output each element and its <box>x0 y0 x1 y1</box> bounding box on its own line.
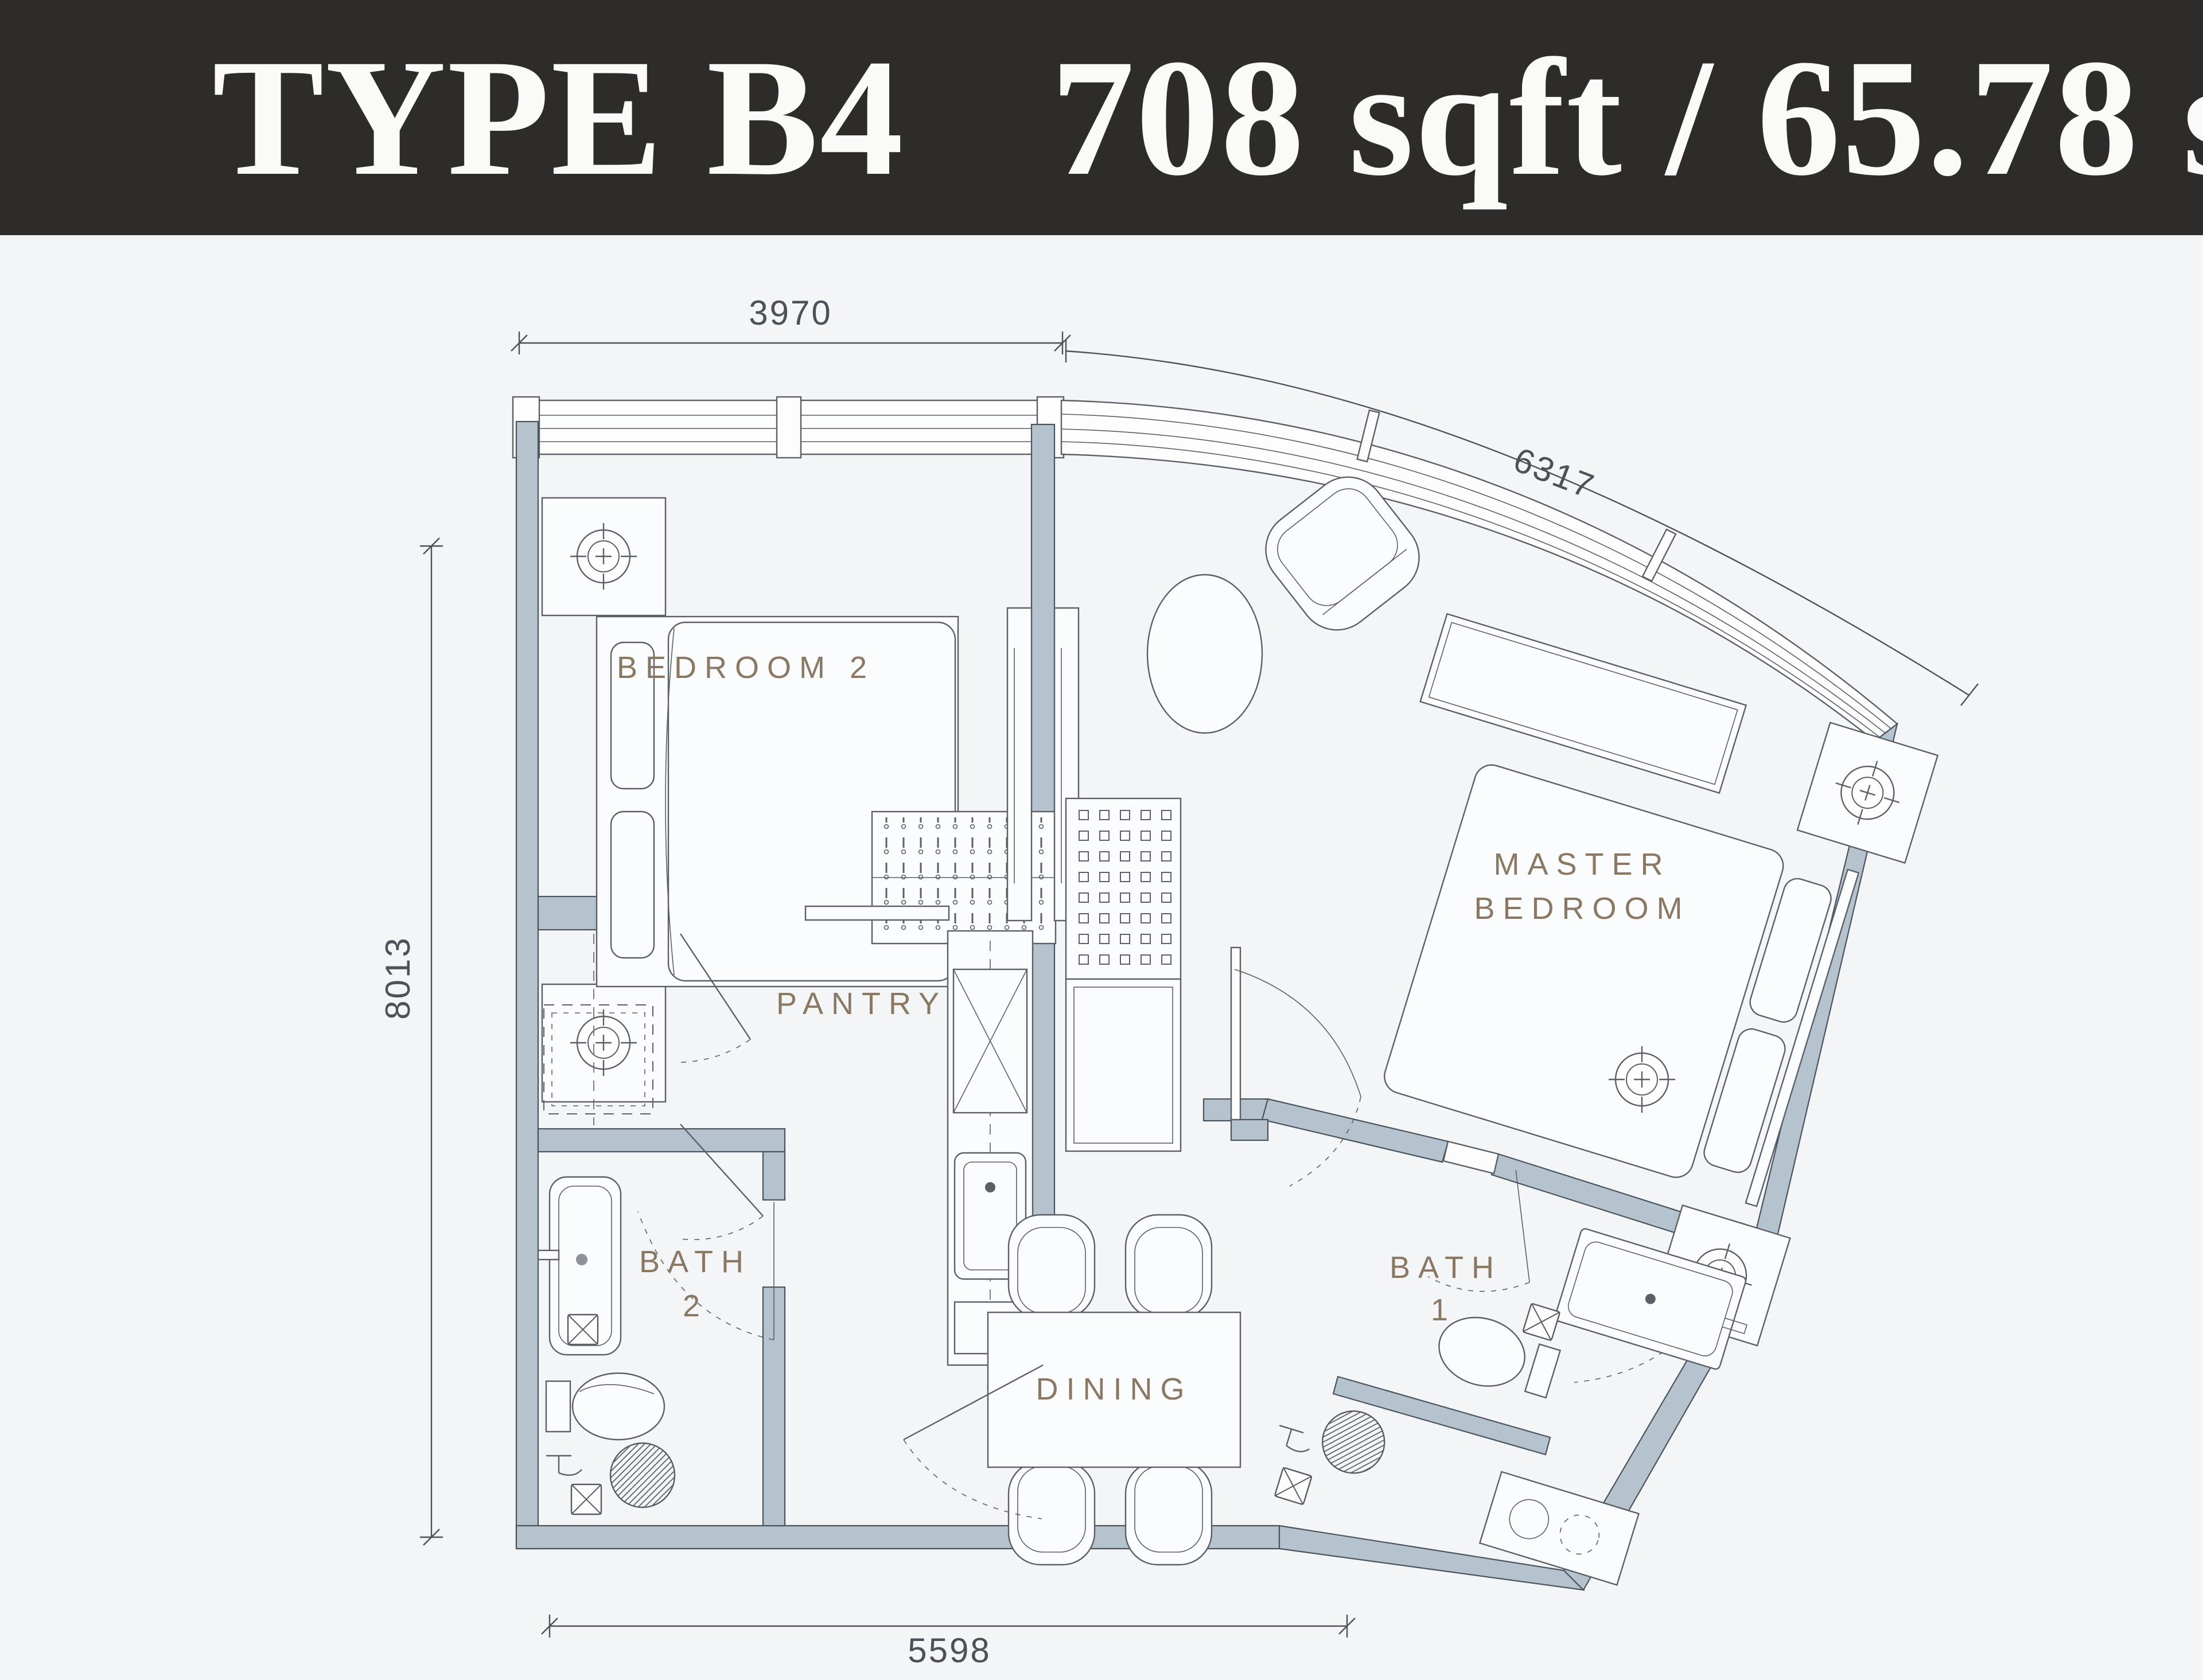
toilet-tank <box>546 1381 570 1432</box>
master-wardrobe <box>1420 614 1746 793</box>
tv-panel <box>1007 608 1032 921</box>
pillow <box>611 812 654 958</box>
bath1-door-frame <box>1443 1141 1498 1174</box>
label-master-2: BEDROOM <box>1474 891 1690 926</box>
floorplan-page: TYPE B4 708 sqft / 65.78 sqm <box>0 0 2203 1680</box>
drain-dot <box>576 1254 587 1265</box>
wall-master-bottom-tilted <box>1262 1099 1448 1162</box>
wall-bath2-top <box>538 1129 785 1152</box>
faucet-icon <box>985 1182 995 1192</box>
window-band-top <box>513 397 1064 458</box>
wall-corridor-thin <box>1231 948 1240 1120</box>
label-bath1-2: 1 <box>1431 1293 1456 1327</box>
entry-cabinet-hatch <box>1071 803 1176 975</box>
floor-plan-drawing: 3970 6317 8013 5598 BEDROOM 2 PANTRY BAT… <box>0 0 2203 1680</box>
dining-chair <box>1126 1215 1212 1318</box>
toilet-bowl <box>573 1373 664 1440</box>
label-bath2-1: BATH <box>639 1245 752 1279</box>
window-mullion <box>777 397 801 458</box>
label-pantry: PANTRY <box>776 987 947 1021</box>
floor-trap-icon <box>568 1315 598 1344</box>
shower-head-icon <box>546 1456 582 1475</box>
label-bedroom2: BEDROOM 2 <box>617 650 875 685</box>
dining-chair <box>1126 1461 1212 1565</box>
label-bath1-1: BATH <box>1389 1250 1502 1285</box>
living-area <box>1147 462 1434 733</box>
wall-left <box>516 422 538 1549</box>
counter-ledge <box>805 906 949 920</box>
wall-bath2-right-stub <box>763 1152 785 1200</box>
label-bath2-2: 2 <box>683 1289 708 1323</box>
dim-left: 8013 <box>379 936 417 1019</box>
label-dining: DINING <box>1036 1372 1193 1406</box>
shower-drain-icon <box>1315 1404 1392 1481</box>
floor-trap-icon <box>1523 1303 1560 1340</box>
dining-chair <box>1009 1461 1095 1565</box>
faucet-icon <box>538 1250 559 1260</box>
room-bath2 <box>538 1177 774 1514</box>
floor-trap-icon <box>571 1484 601 1514</box>
floor-trap-icon <box>1275 1467 1312 1504</box>
label-master-1: MASTER <box>1493 847 1671 882</box>
shower-head-icon <box>1274 1425 1313 1454</box>
toilet-tank <box>1525 1344 1560 1397</box>
dim-top: 3970 <box>749 294 832 332</box>
dim-bottom: 5598 <box>908 1631 991 1670</box>
entry-cabinet-lower <box>1066 979 1181 1151</box>
shower-drain-icon <box>610 1443 675 1507</box>
dining-chair <box>1009 1215 1095 1318</box>
wall-entry-stub <box>1231 1120 1268 1140</box>
side-table <box>1147 575 1262 733</box>
entry-door-swing <box>1235 969 1361 1097</box>
